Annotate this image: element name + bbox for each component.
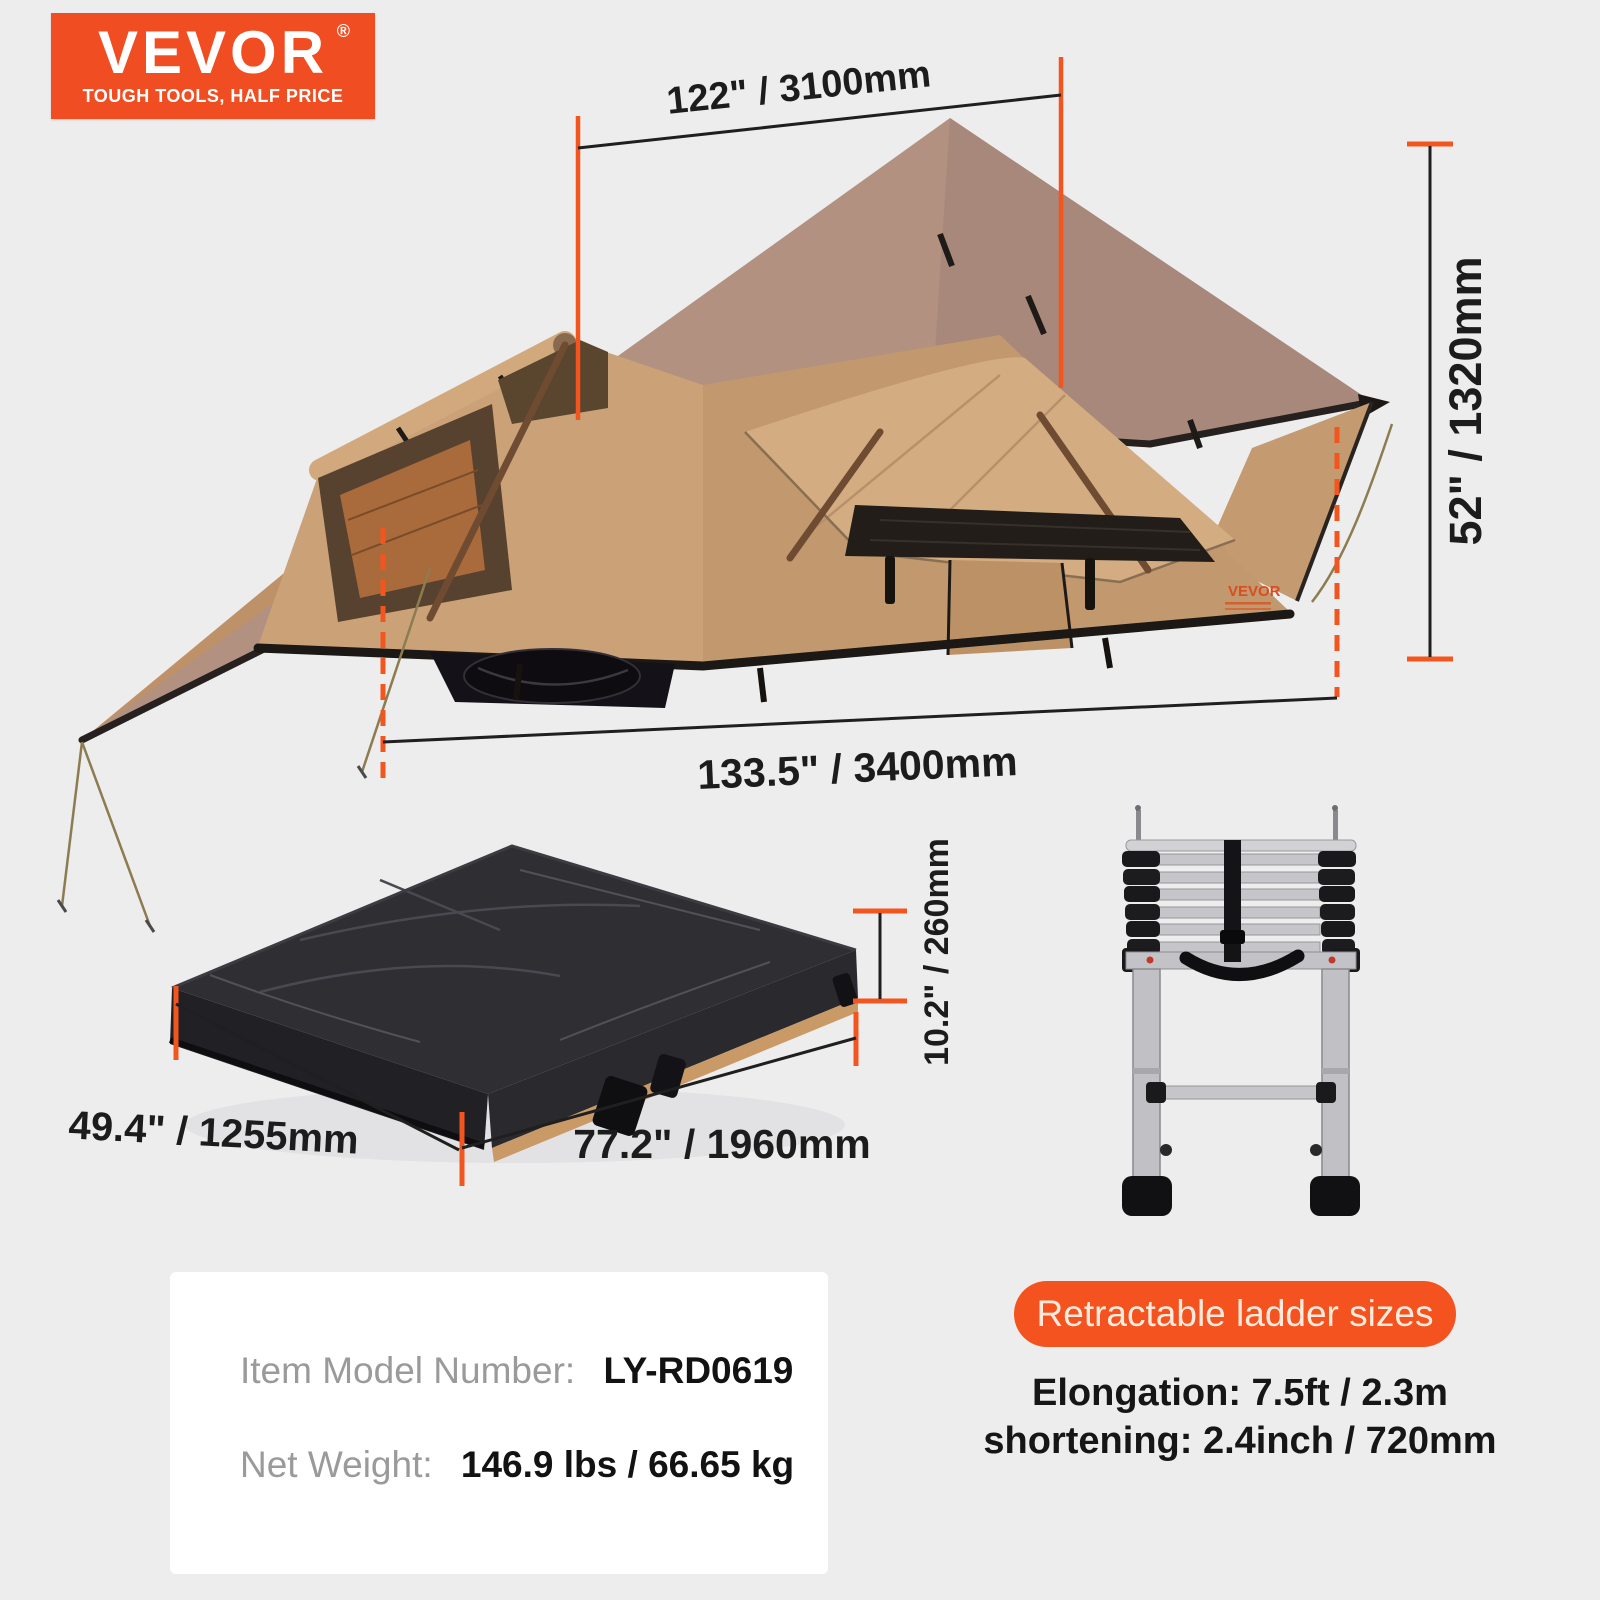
registered-trademark-icon: ® <box>337 21 350 42</box>
brand-logo: VEVOR ® TOUGH TOOLS, HALF PRICE <box>51 13 375 119</box>
dimension-folded-height: 10.2" / 260mm <box>853 838 956 1066</box>
net-weight-value: 146.9 lbs / 66.65 kg <box>461 1444 794 1485</box>
model-number-row: Item Model Number: LY-RD0619 <box>170 1272 828 1392</box>
dim-folded-height-label: 10.2" / 260mm <box>918 838 956 1066</box>
dimension-tent-side: 52" / 1320mm <box>1407 144 1491 659</box>
brand-tagline: TOUGH TOOLS, HALF PRICE <box>51 86 375 107</box>
ladder-shortening-text: shortening: 2.4inch / 720mm <box>950 1420 1530 1463</box>
model-number-label: Item Model Number: <box>240 1350 575 1391</box>
ladder-sizes-badge: Retractable ladder sizes <box>1014 1281 1456 1347</box>
rooftop-tent-image: VEVOR <box>58 118 1392 932</box>
model-number-value: LY-RD0619 <box>603 1350 793 1391</box>
net-weight-row: Net Weight: 146.9 lbs / 66.65 kg <box>170 1392 828 1486</box>
net-weight-label: Net Weight: <box>240 1444 433 1485</box>
tent-fabric-brand-label: VEVOR <box>1228 583 1281 600</box>
brand-name: VEVOR <box>98 19 328 86</box>
dim-tent-bottom-label: 133.5" / 3400mm <box>696 738 1018 798</box>
dim-folded-bottom-label: 77.2" / 1960mm <box>573 1121 871 1167</box>
brand-row: VEVOR ® <box>98 23 328 83</box>
product-infographic: VEVOR 122" / 3100mm 52" / 1320mm 133.5" … <box>0 0 1600 1600</box>
spec-card: Item Model Number: LY-RD0619 Net Weight:… <box>170 1272 828 1574</box>
dim-tent-side-label: 52" / 1320mm <box>1440 256 1491 545</box>
telescopic-ladder-image <box>1122 805 1360 1216</box>
ladder-elongation-text: Elongation: 7.5ft / 2.3m <box>950 1372 1530 1415</box>
